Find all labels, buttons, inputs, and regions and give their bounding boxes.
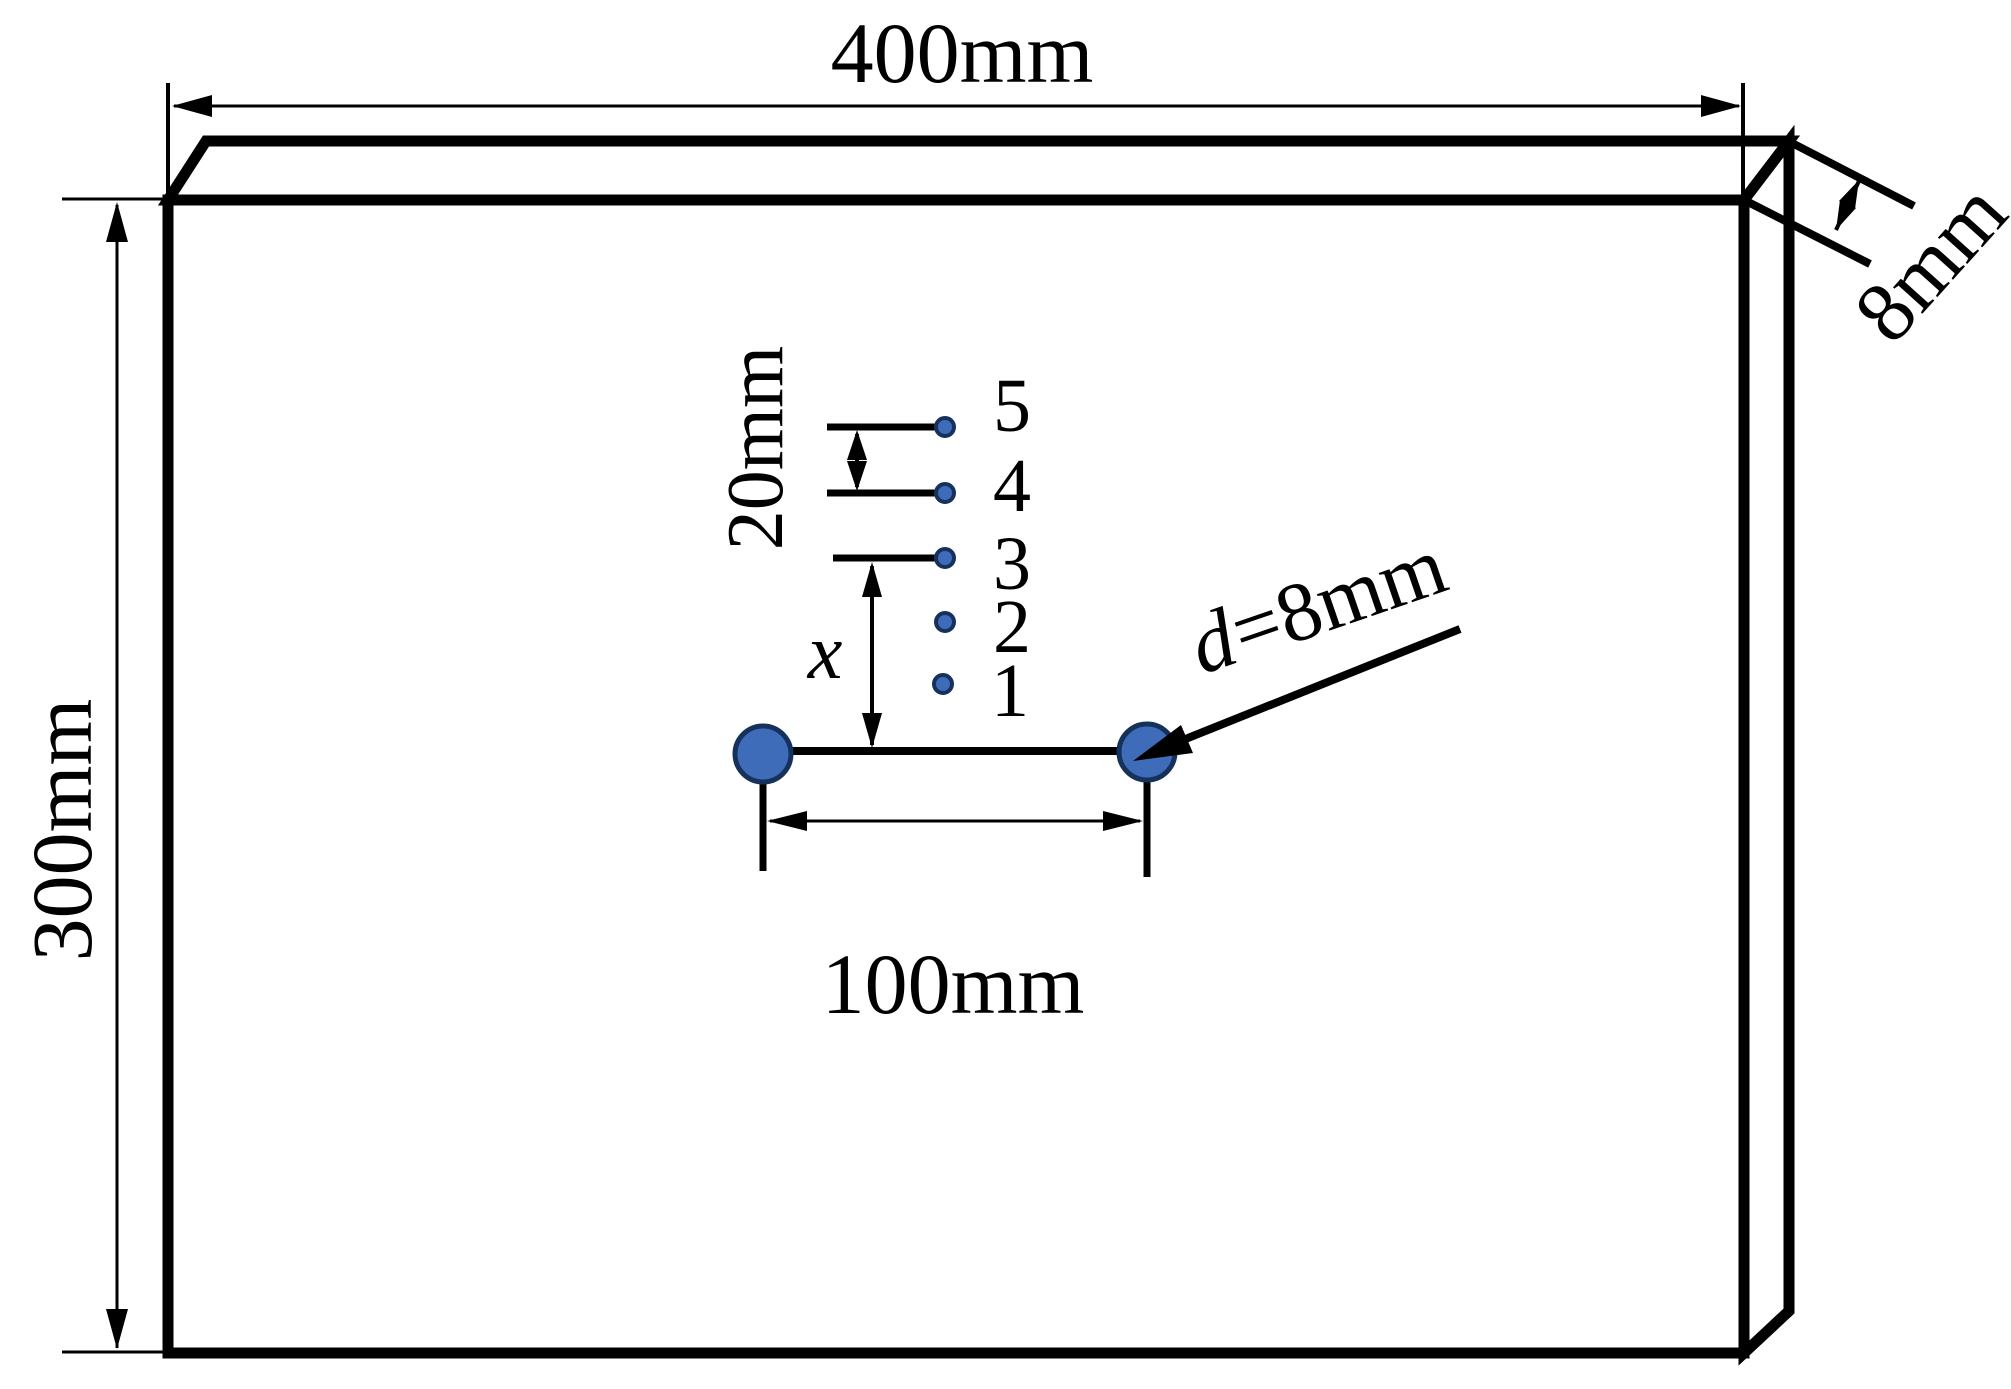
point-dot-1 xyxy=(934,675,952,693)
diagram-canvas: 400mm 300mm 8mm 20mm 5 4 3 2 1 xyxy=(0,0,2011,1389)
dim-400-arrowhead-right-icon xyxy=(1701,95,1741,117)
plate-front-face xyxy=(168,200,1744,1353)
point-label-4: 4 xyxy=(993,444,1031,528)
dim-400-arrowhead-left-icon xyxy=(172,95,212,117)
plate-side-face xyxy=(1744,141,1789,1353)
point-dot-5 xyxy=(936,418,954,436)
dim-height-300: 300mm xyxy=(14,199,172,1352)
point-dot-2 xyxy=(936,613,954,631)
hole-left xyxy=(735,726,791,782)
plate-diagram: 400mm 300mm 8mm 20mm 5 4 3 2 1 xyxy=(0,0,2011,1389)
dim-300-arrowhead-top-icon xyxy=(106,202,128,242)
point-dot-4 xyxy=(936,484,954,502)
dim-x-label: x xyxy=(807,608,843,695)
dim-400-label: 400mm xyxy=(831,5,1094,101)
point-label-5: 5 xyxy=(993,364,1031,448)
dim-300-arrowhead-bottom-icon xyxy=(106,1309,128,1349)
plate-top-face xyxy=(168,141,1789,200)
point-dot-3 xyxy=(936,549,954,567)
dim-20-label: 20mm xyxy=(712,346,800,550)
dim-100-label: 100mm xyxy=(822,936,1085,1032)
point-label-1: 1 xyxy=(991,649,1029,733)
dim-300-label: 300mm xyxy=(14,699,110,962)
